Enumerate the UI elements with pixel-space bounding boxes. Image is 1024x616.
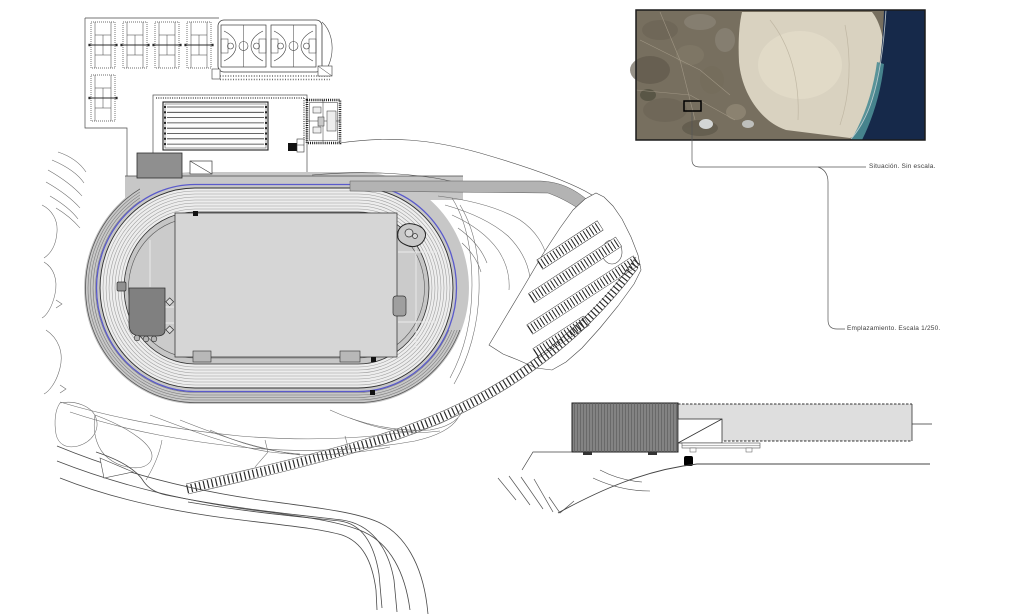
- swimming-pool: [163, 102, 268, 150]
- pool-services-building: [307, 100, 340, 143]
- site-plan-drawing: [0, 0, 1024, 616]
- roads: [57, 446, 650, 614]
- section-drawing: [522, 403, 932, 513]
- sports-complex: [85, 18, 340, 176]
- leader-lines: [692, 112, 866, 329]
- infield-building: [129, 288, 165, 342]
- pool-equipment: [288, 143, 298, 151]
- road-island: [100, 458, 133, 478]
- satellite-image: [630, 10, 925, 140]
- architectural-sheet: Situación. Sin escala. Emplazamiento. Es…: [0, 0, 1024, 616]
- steeplechase-water-pit: [398, 224, 426, 247]
- emplazamiento-label: Emplazamiento. Escala 1/250.: [847, 325, 940, 332]
- tennis-court: [88, 75, 117, 121]
- tennis-court: [184, 22, 213, 68]
- basketball-courts: [212, 20, 332, 80]
- situacion-label: Situación. Sin escala.: [869, 163, 936, 170]
- section-ground-line: [558, 464, 930, 513]
- emplazamiento-leader: [818, 167, 845, 329]
- track-gate: [117, 282, 126, 291]
- infield-pitch: [175, 213, 397, 357]
- tennis-court: [152, 22, 181, 68]
- walkway-hatch: [220, 76, 330, 80]
- tennis-court: [88, 22, 117, 68]
- tennis-court: [120, 22, 149, 68]
- slope-hatching: [498, 476, 574, 513]
